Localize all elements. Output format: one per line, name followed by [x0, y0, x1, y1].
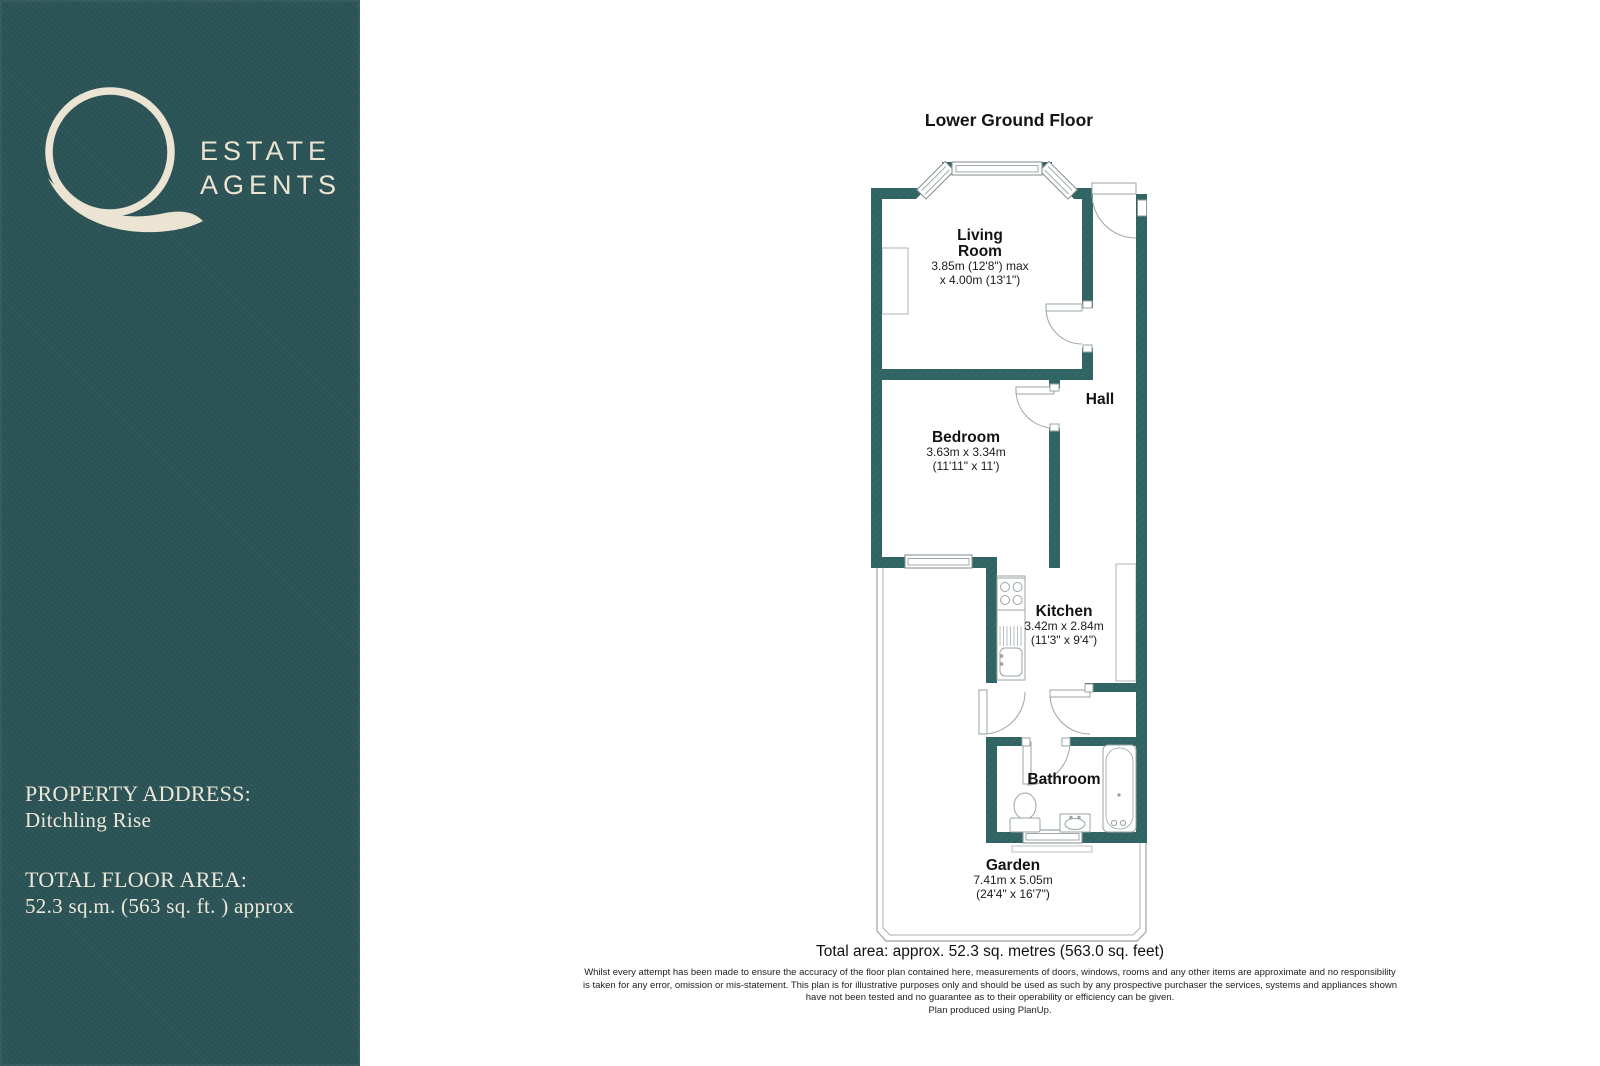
living-room-door	[1046, 301, 1092, 352]
bathtub	[1103, 745, 1136, 832]
floor-area-label: TOTAL FLOOR AREA:	[25, 867, 294, 893]
bathroom-label: Bathroom	[1027, 772, 1100, 788]
hob	[997, 578, 1025, 610]
q-logo-mark	[48, 91, 203, 232]
property-address-value: Ditchling Rise	[25, 807, 251, 833]
page: ESTATE AGENTS PROPERTY ADDRESS: Ditchlin…	[0, 0, 1600, 1066]
disclaimer-line-4: Plan produced using PlanUp.	[583, 1005, 1397, 1018]
kitchen-label: Kitchen 3.42m x 2.84m (11'3" x 9'4")	[1024, 604, 1103, 647]
logo-word-agents: AGENTS	[200, 170, 341, 200]
disclaimer: Whilst every attempt has been made to en…	[583, 967, 1397, 1017]
sidebar: ESTATE AGENTS PROPERTY ADDRESS: Ditchlin…	[0, 0, 360, 1066]
disclaimer-line-1: Whilst every attempt has been made to en…	[583, 967, 1397, 980]
hall-label: Hall	[1086, 392, 1114, 408]
floor-plan-drawing	[360, 0, 1600, 1066]
garden-label: Garden 7.41m x 5.05m (24'4" x 16'7")	[973, 858, 1052, 901]
kitchen-worktop-right	[1116, 564, 1136, 681]
total-area-text: Total area: approx. 52.3 sq. metres (563…	[816, 943, 1164, 961]
property-address-block: PROPERTY ADDRESS: Ditchling Rise	[25, 781, 251, 833]
bathroom-window	[1012, 830, 1092, 852]
bedroom-door	[1016, 384, 1059, 431]
lobby-door	[1050, 684, 1093, 734]
bay-window-right-pane	[1040, 162, 1077, 199]
bay-window	[917, 162, 1077, 199]
front-door	[1092, 183, 1136, 238]
kitchen-fixtures	[997, 576, 1025, 680]
floor-area-value: 52.3 sq.m. (563 sq. ft. ) approx	[25, 893, 294, 919]
disclaimer-line-2: is taken for any error, omission or mis-…	[583, 980, 1397, 993]
q-estate-agents-logo: ESTATE AGENTS	[30, 70, 350, 240]
living-room-alcove	[882, 248, 908, 314]
property-address-label: PROPERTY ADDRESS:	[25, 781, 251, 807]
garden-door	[979, 690, 1025, 734]
disclaimer-line-3: have not been tested and no guarantee as…	[583, 992, 1397, 1005]
bedroom-label: Bedroom 3.63m x 3.34m (11'11" x 11')	[926, 430, 1005, 473]
bay-window-left-pane	[917, 162, 954, 199]
toilet	[1010, 793, 1040, 832]
bathroom-sink	[1060, 814, 1090, 832]
bedroom-window	[905, 555, 972, 568]
living-room-label: Living Room 3.85m (12'8") max x 4.00m (1…	[931, 228, 1028, 287]
entrance-side-window	[1138, 200, 1147, 216]
logo-word-estate: ESTATE	[200, 136, 331, 166]
floor-area-block: TOTAL FLOOR AREA: 52.3 sq.m. (563 sq. ft…	[25, 867, 294, 919]
